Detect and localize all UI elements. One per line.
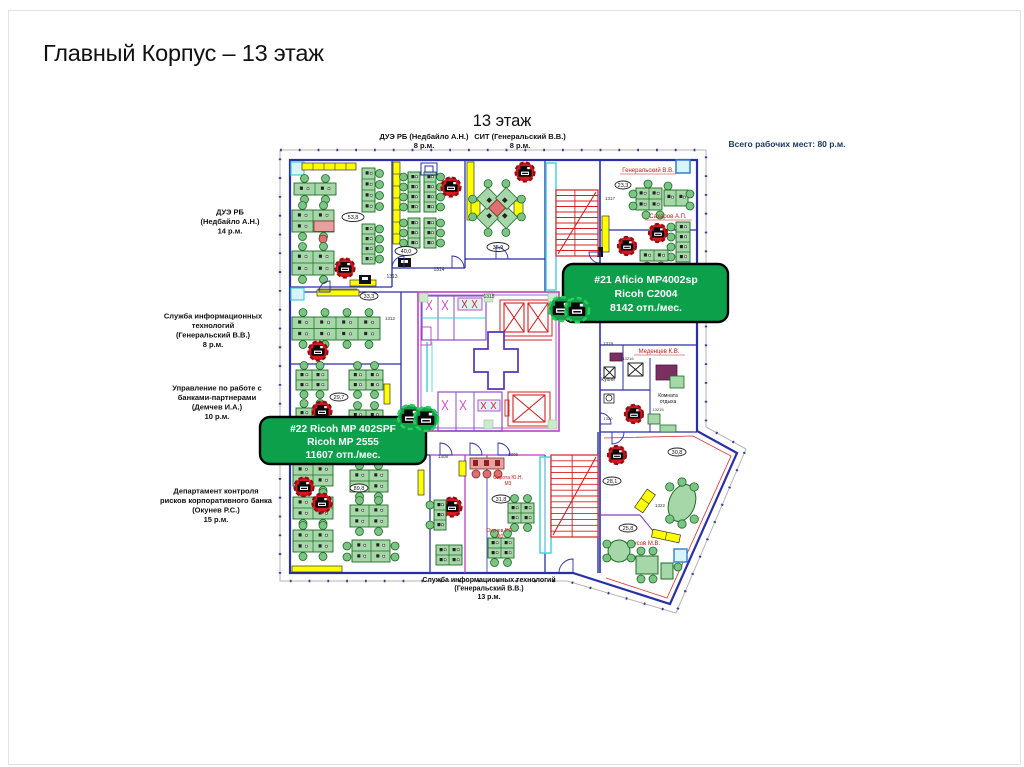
svg-text:1322: 1322 [655, 503, 666, 508]
svg-text:11607 отп./мес.: 11607 отп./мес. [306, 450, 381, 461]
svg-text:(Генеральский В.В.): (Генеральский В.В.) [176, 331, 251, 340]
svg-text:25,8: 25,8 [623, 526, 634, 532]
svg-text:15 р.м.: 15 р.м. [204, 515, 229, 524]
svg-text:Всего рабочих мест: 80 р.м.: Всего рабочих мест: 80 р.м. [729, 139, 846, 149]
svg-text:29,7: 29,7 [334, 395, 345, 401]
svg-text:Меденцев К.В.: Меденцев К.В. [639, 349, 680, 355]
svg-text:Генеральский В.В.: Генеральский В.В. [622, 167, 674, 174]
svg-text:8 р.м.: 8 р.м. [414, 141, 435, 150]
svg-text:рисков корпоративного банка: рисков корпоративного банка [160, 496, 273, 505]
svg-text:13 р.м.: 13 р.м. [477, 594, 500, 601]
svg-text:(Окунев Р.С.): (Окунев Р.С.) [192, 506, 240, 515]
svg-text:ДУЭ РБ (Недбайло А.Н.): ДУЭ РБ (Недбайло А.Н.) [380, 132, 469, 141]
svg-text:89,8: 89,8 [354, 486, 365, 492]
svg-text:СИТ (Генеральский В.В.): СИТ (Генеральский В.В.) [474, 132, 566, 141]
svg-text:1312: 1312 [385, 316, 396, 321]
svg-text:14 р.м.: 14 р.м. [218, 227, 243, 236]
svg-text:Служба информационных: Служба информационных [164, 312, 263, 321]
svg-text:53,8: 53,8 [348, 215, 359, 221]
svg-text:13 этаж: 13 этаж [473, 112, 532, 130]
svg-text:М3: М3 [505, 481, 512, 487]
svg-text:технологий: технологий [192, 321, 235, 330]
svg-text:#21 Aficio MP4002sp: #21 Aficio MP4002sp [594, 274, 698, 286]
svg-text:банками-партнерами: банками-партнерами [178, 393, 257, 402]
svg-text:1317: 1317 [605, 196, 616, 201]
svg-text:М3: М3 [497, 534, 504, 540]
svg-text:40,0: 40,0 [401, 249, 412, 255]
svg-text:ДУЭ РБ: ДУЭ РБ [216, 208, 244, 217]
svg-text:8142 отп./мес.: 8142 отп./мес. [610, 302, 682, 314]
svg-text:(Генеральский В.В.): (Генеральский В.В.) [454, 585, 523, 593]
svg-text:13215: 13215 [652, 407, 664, 412]
svg-text:Ricoh MP 2555: Ricoh MP 2555 [307, 437, 379, 448]
svg-text:Сахаров А.П.: Сахаров А.П. [649, 214, 687, 220]
svg-text:Ricoh C2004: Ricoh C2004 [614, 288, 677, 300]
svg-text:31,8: 31,8 [496, 497, 507, 503]
svg-text:Служба информационных технолог: Служба информационных технологий [422, 576, 555, 584]
svg-text:Управление по работе с: Управление по работе с [172, 384, 261, 393]
svg-text:8 р.м.: 8 р.м. [203, 340, 224, 349]
svg-text:23,3: 23,3 [618, 183, 629, 189]
svg-text:1313: 1313 [386, 274, 397, 280]
svg-text:1319: 1319 [603, 341, 614, 346]
svg-text:28,1: 28,1 [607, 479, 618, 485]
svg-text:13216: 13216 [622, 356, 634, 361]
svg-text:30,8: 30,8 [672, 450, 683, 456]
svg-text:1315: 1315 [483, 294, 494, 300]
svg-text:Департамент контроля: Департамент контроля [173, 487, 258, 496]
svg-text:Кухня: Кухня [601, 377, 615, 383]
svg-text:33,3: 33,3 [364, 294, 375, 300]
svg-text:8 р.м.: 8 р.м. [510, 141, 531, 150]
svg-text:1314: 1314 [433, 267, 444, 273]
svg-text:#22 Ricoh MP 402SPF: #22 Ricoh MP 402SPF [290, 424, 396, 435]
svg-text:10 р.м.: 10 р.м. [205, 412, 230, 421]
svg-text:(Недбайло А.Н.): (Недбайло А.Н.) [200, 217, 260, 226]
svg-text:(Демчев И.А.): (Демчев И.А.) [192, 403, 243, 412]
svg-text:отдыха: отдыха [660, 399, 677, 405]
